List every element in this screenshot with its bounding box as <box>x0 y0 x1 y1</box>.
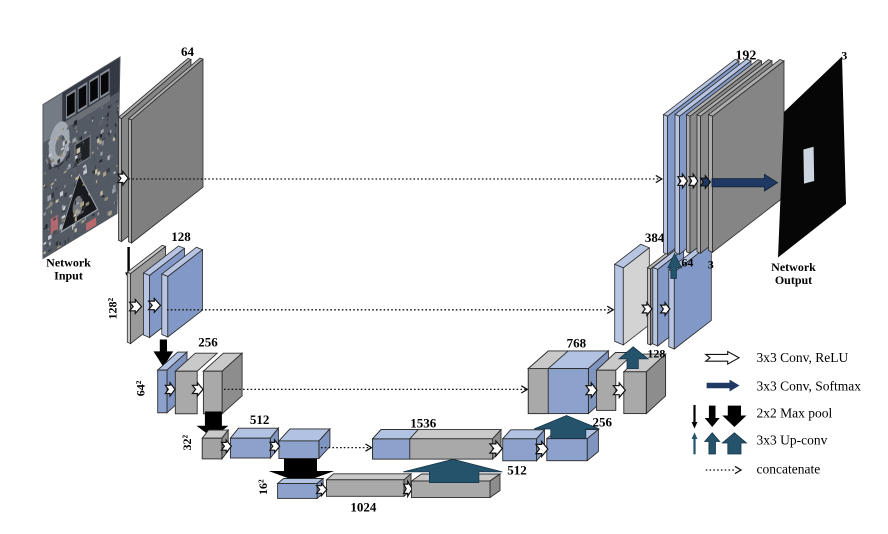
svg-text:16²: 16² <box>256 479 270 495</box>
svg-text:3x3 Conv, Softmax: 3x3 Conv, Softmax <box>757 379 862 394</box>
svg-text:2x2 Max pool: 2x2 Max pool <box>757 406 833 421</box>
svg-text:64: 64 <box>681 256 693 270</box>
svg-text:Input: Input <box>54 269 83 283</box>
svg-text:64²: 64² <box>134 380 148 396</box>
svg-text:128: 128 <box>171 229 191 244</box>
svg-text:768: 768 <box>567 336 587 351</box>
svg-text:192: 192 <box>735 49 756 64</box>
svg-text:Network: Network <box>46 256 91 270</box>
svg-text:3x3 Up-conv: 3x3 Up-conv <box>757 433 828 448</box>
svg-text:3: 3 <box>708 258 714 272</box>
svg-text:128²: 128² <box>105 298 119 320</box>
svg-text:1536: 1536 <box>410 416 437 431</box>
svg-text:Network: Network <box>771 260 816 274</box>
svg-text:512: 512 <box>507 463 527 478</box>
svg-text:512: 512 <box>250 412 270 427</box>
svg-text:128: 128 <box>647 347 665 361</box>
svg-text:384: 384 <box>645 230 665 245</box>
svg-text:3x3 Conv, ReLU: 3x3 Conv, ReLU <box>757 350 849 365</box>
svg-text:1024: 1024 <box>350 500 377 515</box>
svg-text:concatenate: concatenate <box>757 462 821 477</box>
svg-text:Output: Output <box>775 273 812 287</box>
svg-text:64: 64 <box>181 44 195 59</box>
svg-text:3: 3 <box>841 49 847 63</box>
svg-text:32²: 32² <box>180 435 194 451</box>
svg-text:256: 256 <box>592 415 612 430</box>
svg-text:256: 256 <box>198 335 218 350</box>
